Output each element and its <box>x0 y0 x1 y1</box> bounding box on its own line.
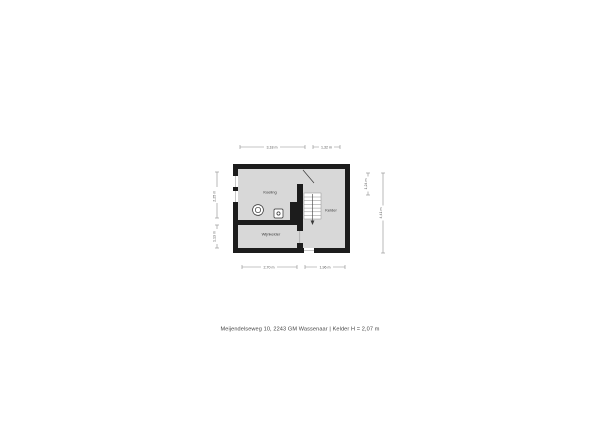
boiler-icon <box>253 205 264 216</box>
dim-label-bottom-right: 1,96 m <box>320 265 331 269</box>
dimension-bottom-right: 1,96 m <box>305 265 345 270</box>
room-label-koeling: Koeling <box>263 190 276 195</box>
room-label-kelder: Kelder <box>325 208 337 213</box>
dimension-top-right: 1,32 m <box>313 145 340 150</box>
dim-label-top-right: 1,32 m <box>321 145 332 149</box>
floorplan-page: Koeling Kelder Wijnkelder 3,18 m 1,32 m … <box>0 0 600 424</box>
address-caption: Meijendelseweg 10, 2243 GM Wassenaar | K… <box>220 327 379 333</box>
dim-label-top-left: 3,18 m <box>267 145 278 149</box>
dimension-bottom-left: 2,70 m <box>242 265 297 270</box>
room-label-wijnkelder: Wijnkelder <box>262 232 281 237</box>
dimension-left-lower: 1,13 m <box>213 225 220 248</box>
dimension-right-inner: 1,24 m <box>364 173 371 195</box>
dim-label-right-inner: 1,24 m <box>364 179 368 190</box>
dimension-top-left: 3,18 m <box>240 145 305 150</box>
dim-label-bottom-left: 2,70 m <box>264 265 275 269</box>
dimension-right-outer: 4,41 m <box>379 173 386 253</box>
dim-label-left-upper: 2,25 m <box>213 191 217 202</box>
sink-icon <box>274 209 283 218</box>
dim-label-right-outer: 4,41 m <box>379 208 383 219</box>
dim-label-left-lower: 1,13 m <box>213 231 217 242</box>
dimension-left-upper: 2,25 m <box>213 172 220 218</box>
floorplan-canvas: Koeling Kelder Wijnkelder 3,18 m 1,32 m … <box>0 0 600 424</box>
